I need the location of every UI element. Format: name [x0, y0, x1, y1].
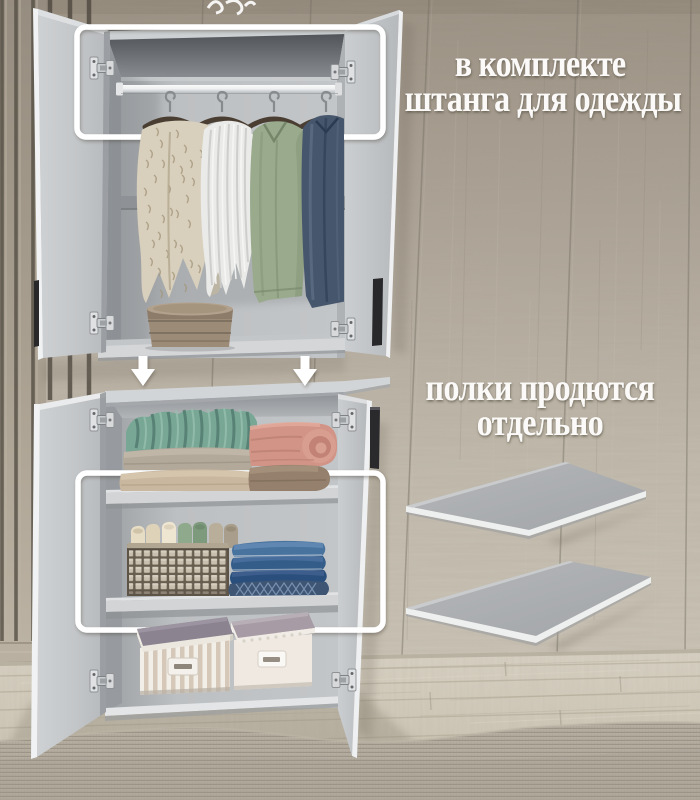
svg-text:штанга для одежды: штанга для одежды — [405, 78, 682, 120]
svg-text:отдельно: отдельно — [477, 402, 604, 444]
